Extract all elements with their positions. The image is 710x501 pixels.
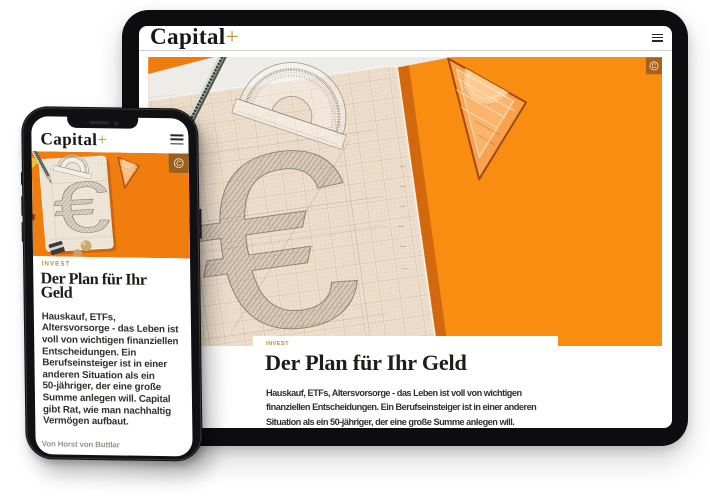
svg-text:C: C (651, 63, 656, 70)
svg-text:€: € (50, 166, 112, 249)
svg-text:C: C (176, 160, 181, 167)
